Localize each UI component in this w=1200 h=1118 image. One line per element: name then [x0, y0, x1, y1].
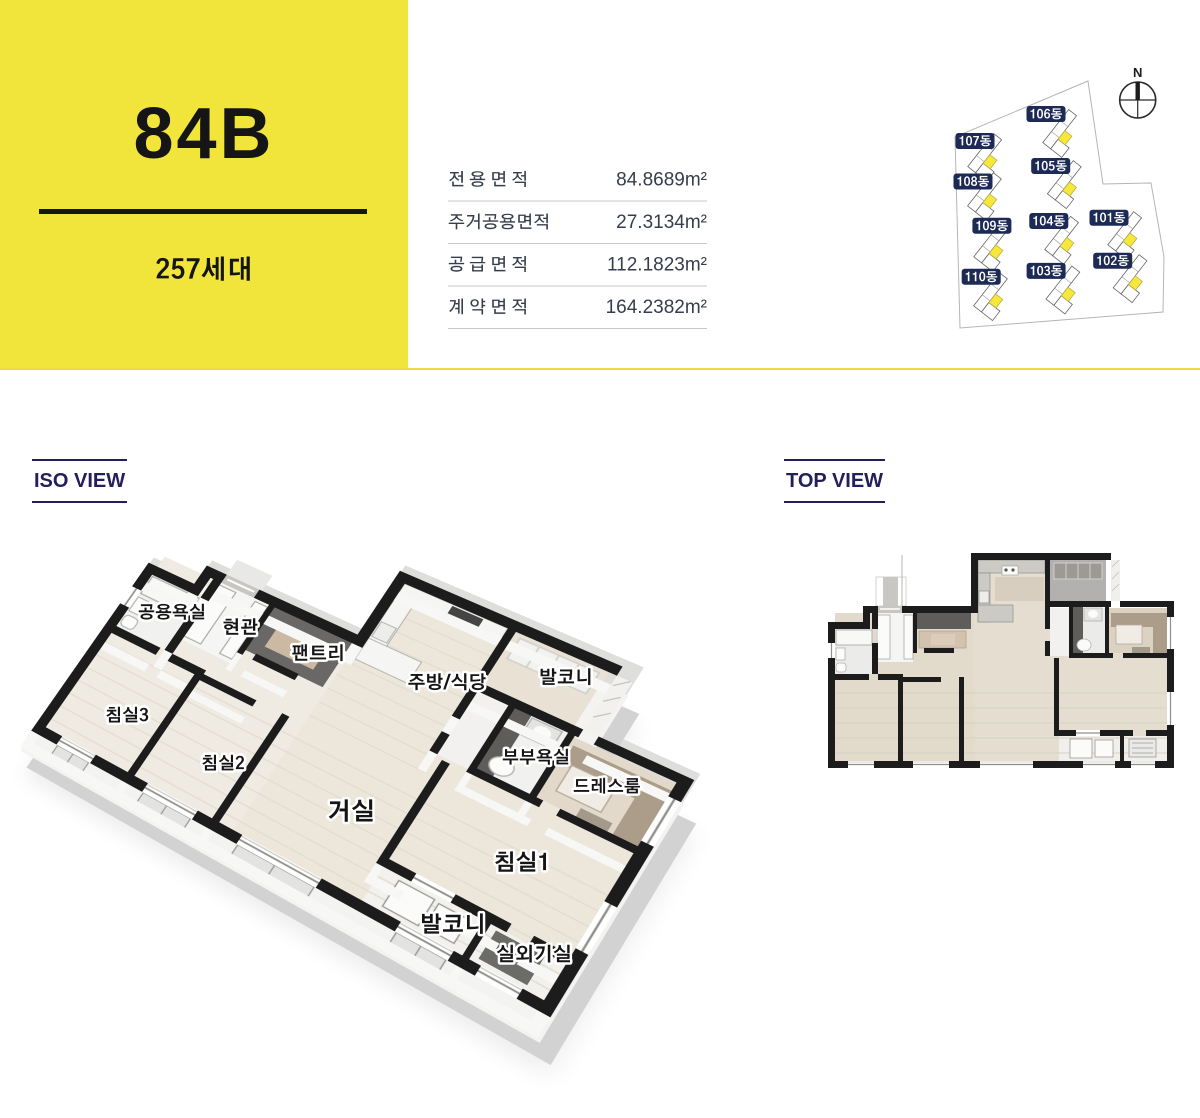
svg-text:84.8689m²: 84.8689m²	[616, 170, 707, 191]
svg-text:112.1823m²: 112.1823m²	[607, 255, 707, 276]
svg-text:N: N	[1133, 65, 1142, 80]
svg-text:164.2382m²: 164.2382m²	[606, 297, 707, 318]
svg-text:27.3134m²: 27.3134m²	[616, 212, 707, 233]
